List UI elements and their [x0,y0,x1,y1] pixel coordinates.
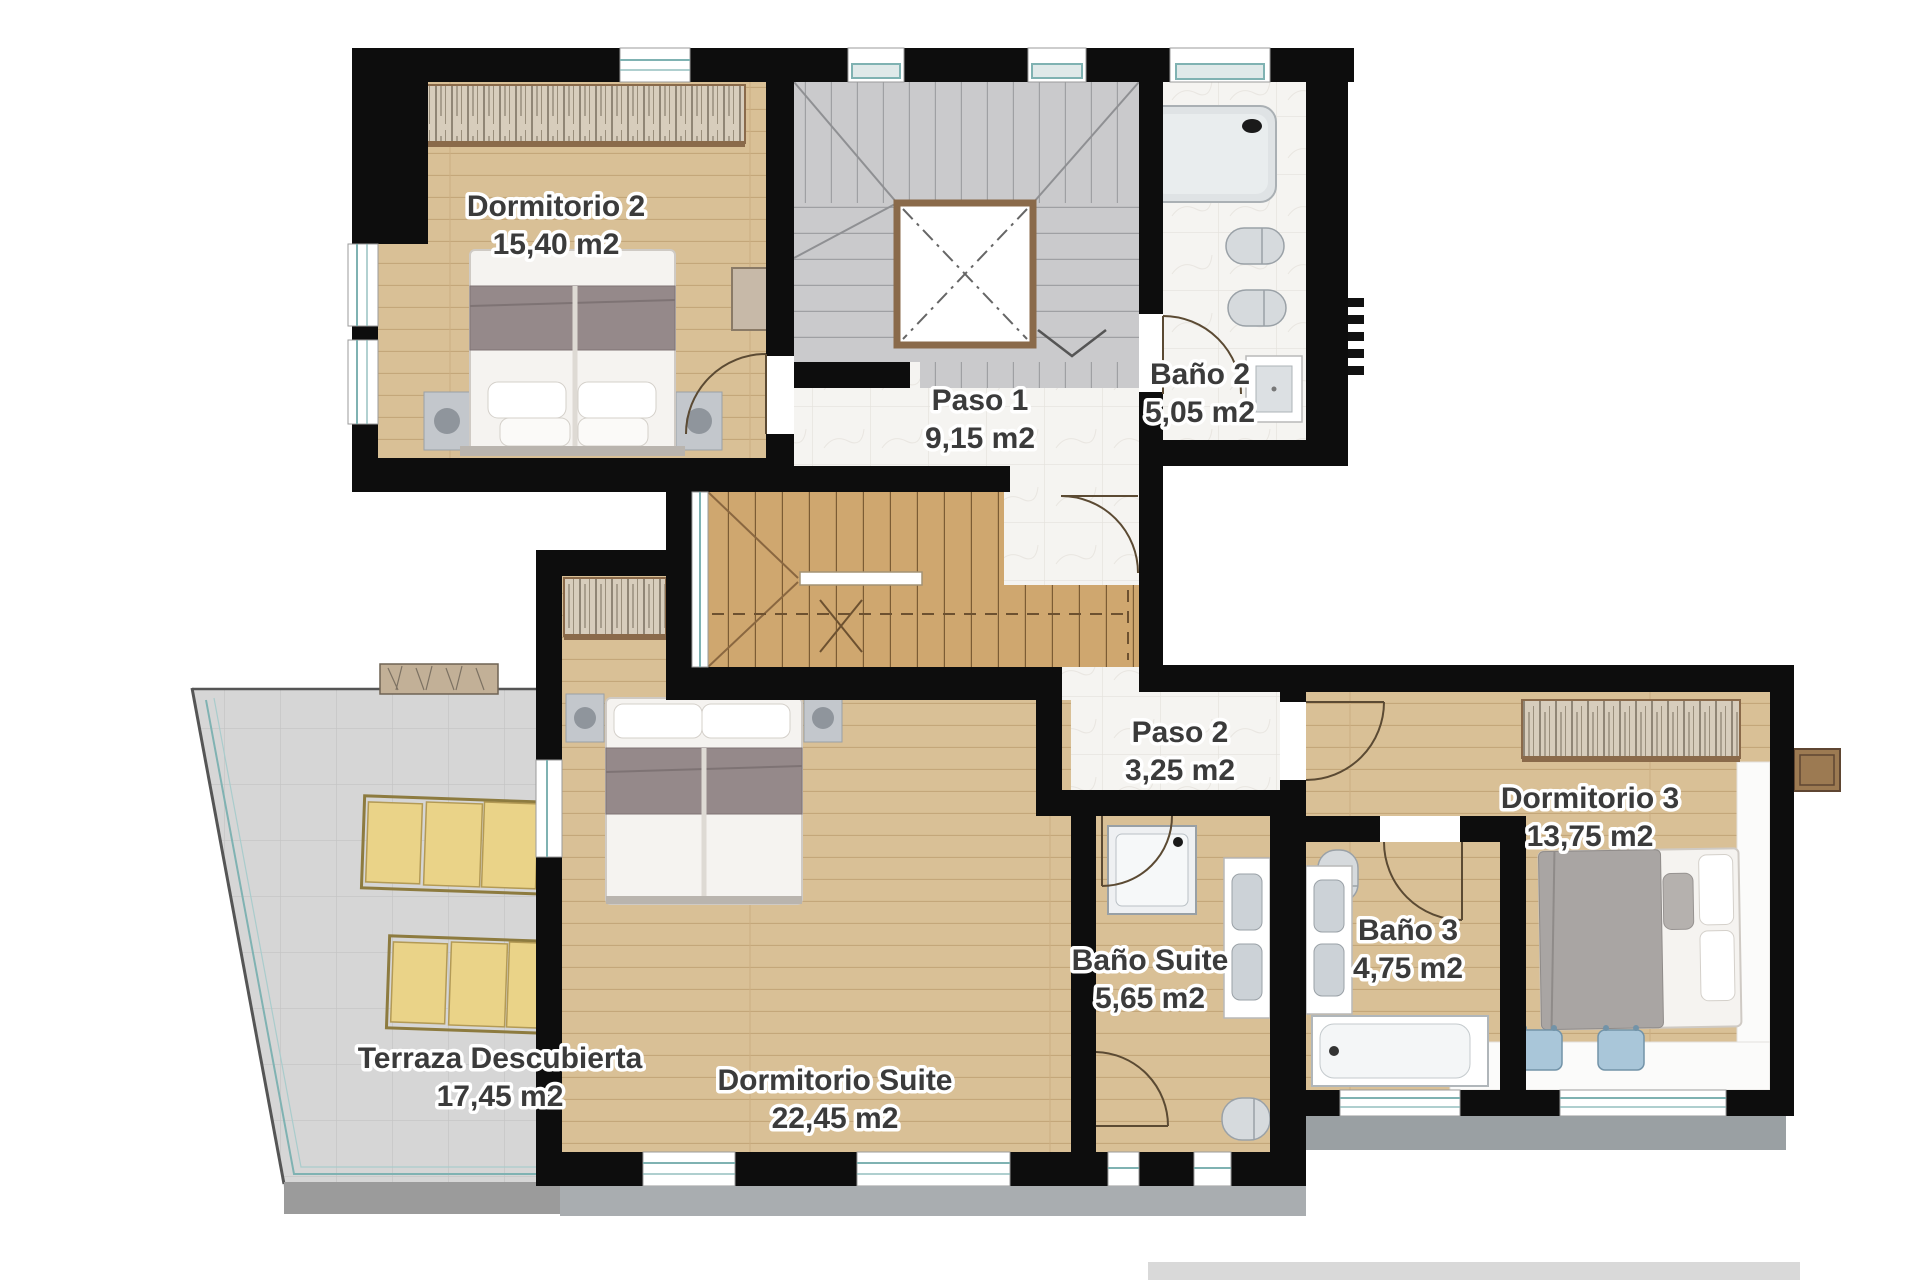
window [848,48,904,82]
bathtub [1312,1016,1488,1086]
bathtub [1146,106,1276,202]
shutter-ticks [1348,298,1364,375]
room-label-area: 17,45 m2 [437,1080,564,1113]
ledge [1306,1116,1786,1150]
vanity-counter [1224,858,1270,1018]
room-label-area: 4,75 m2 [1353,952,1463,985]
vanity-counter [1306,866,1352,1014]
watermark-bar [1148,1262,1800,1280]
wardrobe [1522,700,1740,758]
room-label-name: Paso 2 [1132,716,1229,749]
room-label-name: Baño 2 [1150,358,1250,391]
wardrobe [420,85,745,143]
terrace-area [192,664,588,1214]
room-label-name: Terraza Descubierta [358,1042,643,1075]
window [1194,1152,1231,1186]
window [1170,48,1270,82]
room-label-area: 9,15 m2 [925,422,1035,455]
window [692,492,708,667]
shower [1108,826,1196,914]
stone-wall-segment [380,664,498,694]
wardrobe-front-rail [420,141,745,147]
ledge [560,1186,1306,1216]
terrace-lower-ledge [284,1182,560,1214]
window [1028,48,1086,82]
room-label-name: Dormitorio Suite [717,1064,952,1097]
toilet [1222,1098,1270,1140]
wardrobe-front-rail [564,634,666,640]
room-label-area: 15,40 m2 [493,228,620,261]
sliding-door-window [1560,1090,1726,1116]
window [536,760,562,857]
room-label-area: 13,75 m2 [1527,820,1654,853]
window [348,340,378,424]
single-bed [1538,848,1741,1029]
room-label-area: 22,45 m2 [772,1102,899,1135]
room-label-name: Paso 1 [932,384,1029,417]
stool [1598,1025,1644,1070]
floor-plan-drawing: Dormitorio 2 15,40 m2 Paso 1 9,15 m2 Bañ… [0,0,1920,1280]
bidet [1226,228,1284,264]
room-label-name: Dormitorio 2 [467,190,645,223]
room-label-area: 5,05 m2 [1145,396,1255,429]
window [643,1152,735,1186]
room-label-area: 5,65 m2 [1095,982,1205,1015]
dormitorio3-rug-side [1737,762,1770,1090]
room-label-name: Dormitorio 3 [1501,782,1679,815]
window [1108,1152,1139,1186]
window [620,48,690,82]
sun-lounger [361,794,562,895]
double-bed [566,694,842,904]
floor-plan-page: Dormitorio 2 15,40 m2 Paso 1 9,15 m2 Bañ… [0,0,1920,1280]
stair-railing [800,572,922,585]
toilet [1228,290,1286,326]
window [1340,1090,1460,1116]
room-label-name: Baño 3 [1358,914,1458,947]
room-label-name: Baño Suite [1072,944,1229,977]
room-label-area: 3,25 m2 [1125,754,1235,787]
window [348,244,378,326]
wardrobe [564,578,666,636]
window [857,1152,1010,1186]
wardrobe-front-rail [1522,756,1740,762]
exterior-planter [1794,749,1840,791]
